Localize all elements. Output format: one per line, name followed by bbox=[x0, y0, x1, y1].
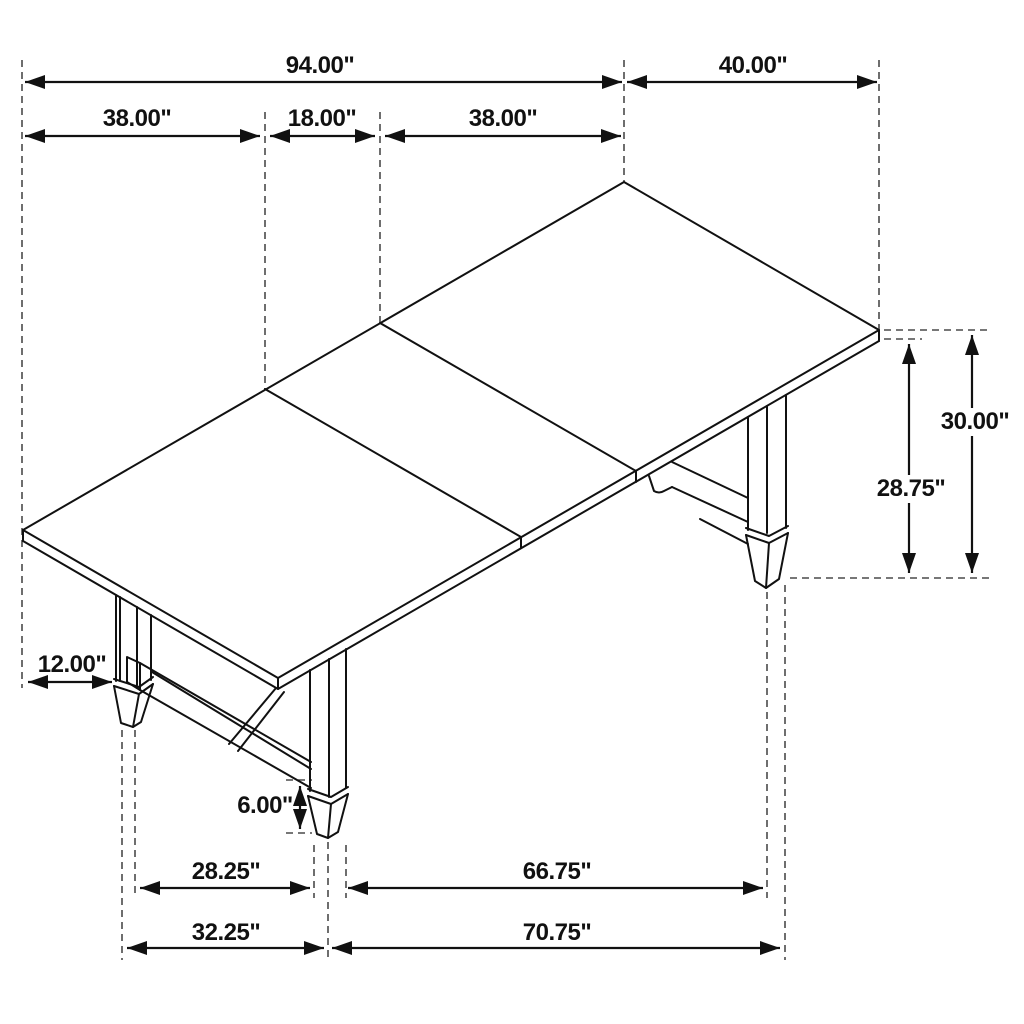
dim-label-center-leaf: 18.00" bbox=[288, 107, 356, 131]
right-stretcher bbox=[649, 462, 748, 544]
table-geometry bbox=[23, 182, 879, 838]
dim-label-table-height: 30.00" bbox=[937, 408, 1013, 436]
dim-label-foot-height: 6.00" bbox=[237, 794, 293, 818]
left-front-leg bbox=[308, 649, 348, 838]
extension-lines bbox=[22, 60, 990, 960]
dim-label-left-section: 38.00" bbox=[103, 107, 171, 131]
dimension-diagram: 94.00" 40.00" 38.00" 18.00" 38.00" 12.00… bbox=[0, 0, 1024, 1024]
dim-label-end-overhang: 12.00" bbox=[38, 653, 106, 677]
left-stretcher bbox=[127, 657, 311, 788]
dim-label-right-section: 38.00" bbox=[469, 107, 537, 131]
table-line-drawing bbox=[0, 0, 1024, 1024]
dim-label-overall-length: 94.00" bbox=[286, 54, 354, 78]
dim-label-base-left-inner: 28.25" bbox=[192, 860, 260, 884]
dim-label-base-left-outer: 32.25" bbox=[192, 921, 260, 945]
dimension-lines bbox=[25, 82, 972, 948]
dim-label-base-right-inner: 66.75" bbox=[523, 860, 591, 884]
right-back-leg bbox=[746, 395, 788, 588]
dim-label-table-width: 40.00" bbox=[719, 54, 787, 78]
dim-label-underside-height: 28.75" bbox=[873, 475, 949, 503]
dim-label-base-right-outer: 70.75" bbox=[523, 921, 591, 945]
tabletop bbox=[23, 182, 879, 689]
